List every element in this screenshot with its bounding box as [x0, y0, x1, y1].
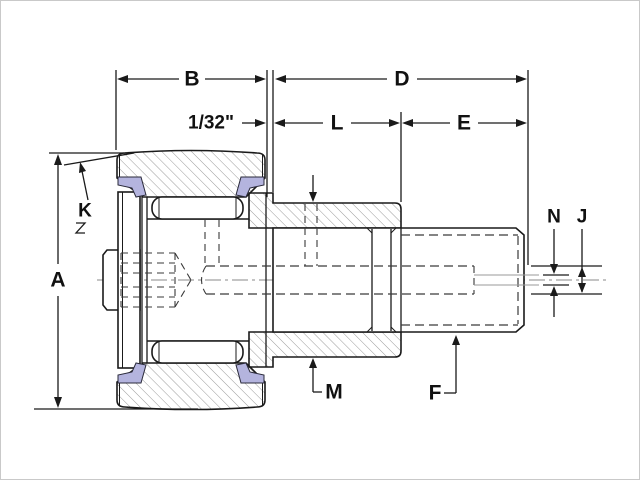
flange-collar-bottom [249, 332, 401, 367]
dim-label-gap: 1/32" [188, 113, 234, 134]
lube-hole-pointer [309, 175, 317, 202]
dim-label-l: L [331, 112, 344, 135]
dimension-k: K [76, 162, 92, 233]
dim-label-d: D [394, 68, 409, 91]
dim-label-n: N [547, 207, 561, 228]
dim-label-m: M [325, 381, 343, 404]
dimension-e: E [402, 112, 527, 135]
dimension-f: F [429, 335, 460, 405]
dim-label-j: J [577, 207, 588, 228]
dim-label-b: B [184, 68, 199, 91]
dimension-l: L [274, 112, 401, 203]
crown-symbol [76, 223, 85, 233]
dimension-n: N [543, 207, 569, 318]
dim-label-k: K [78, 201, 92, 222]
roller-bottom [152, 341, 243, 363]
dim-label-e: E [457, 112, 471, 135]
dim-label-f: F [429, 382, 442, 405]
cam-follower-drawing: B D 1/32" L E [1, 1, 640, 480]
dimension-m: M [309, 358, 343, 404]
technical-drawing-canvas: B D 1/32" L E [0, 0, 640, 480]
dim-label-a: A [50, 269, 65, 292]
flange-collar-top [249, 193, 401, 228]
dimension-j: J [531, 207, 602, 295]
stud-body [273, 228, 524, 332]
dimension-gap: 1/32" [188, 113, 266, 134]
roller-top [152, 197, 243, 219]
